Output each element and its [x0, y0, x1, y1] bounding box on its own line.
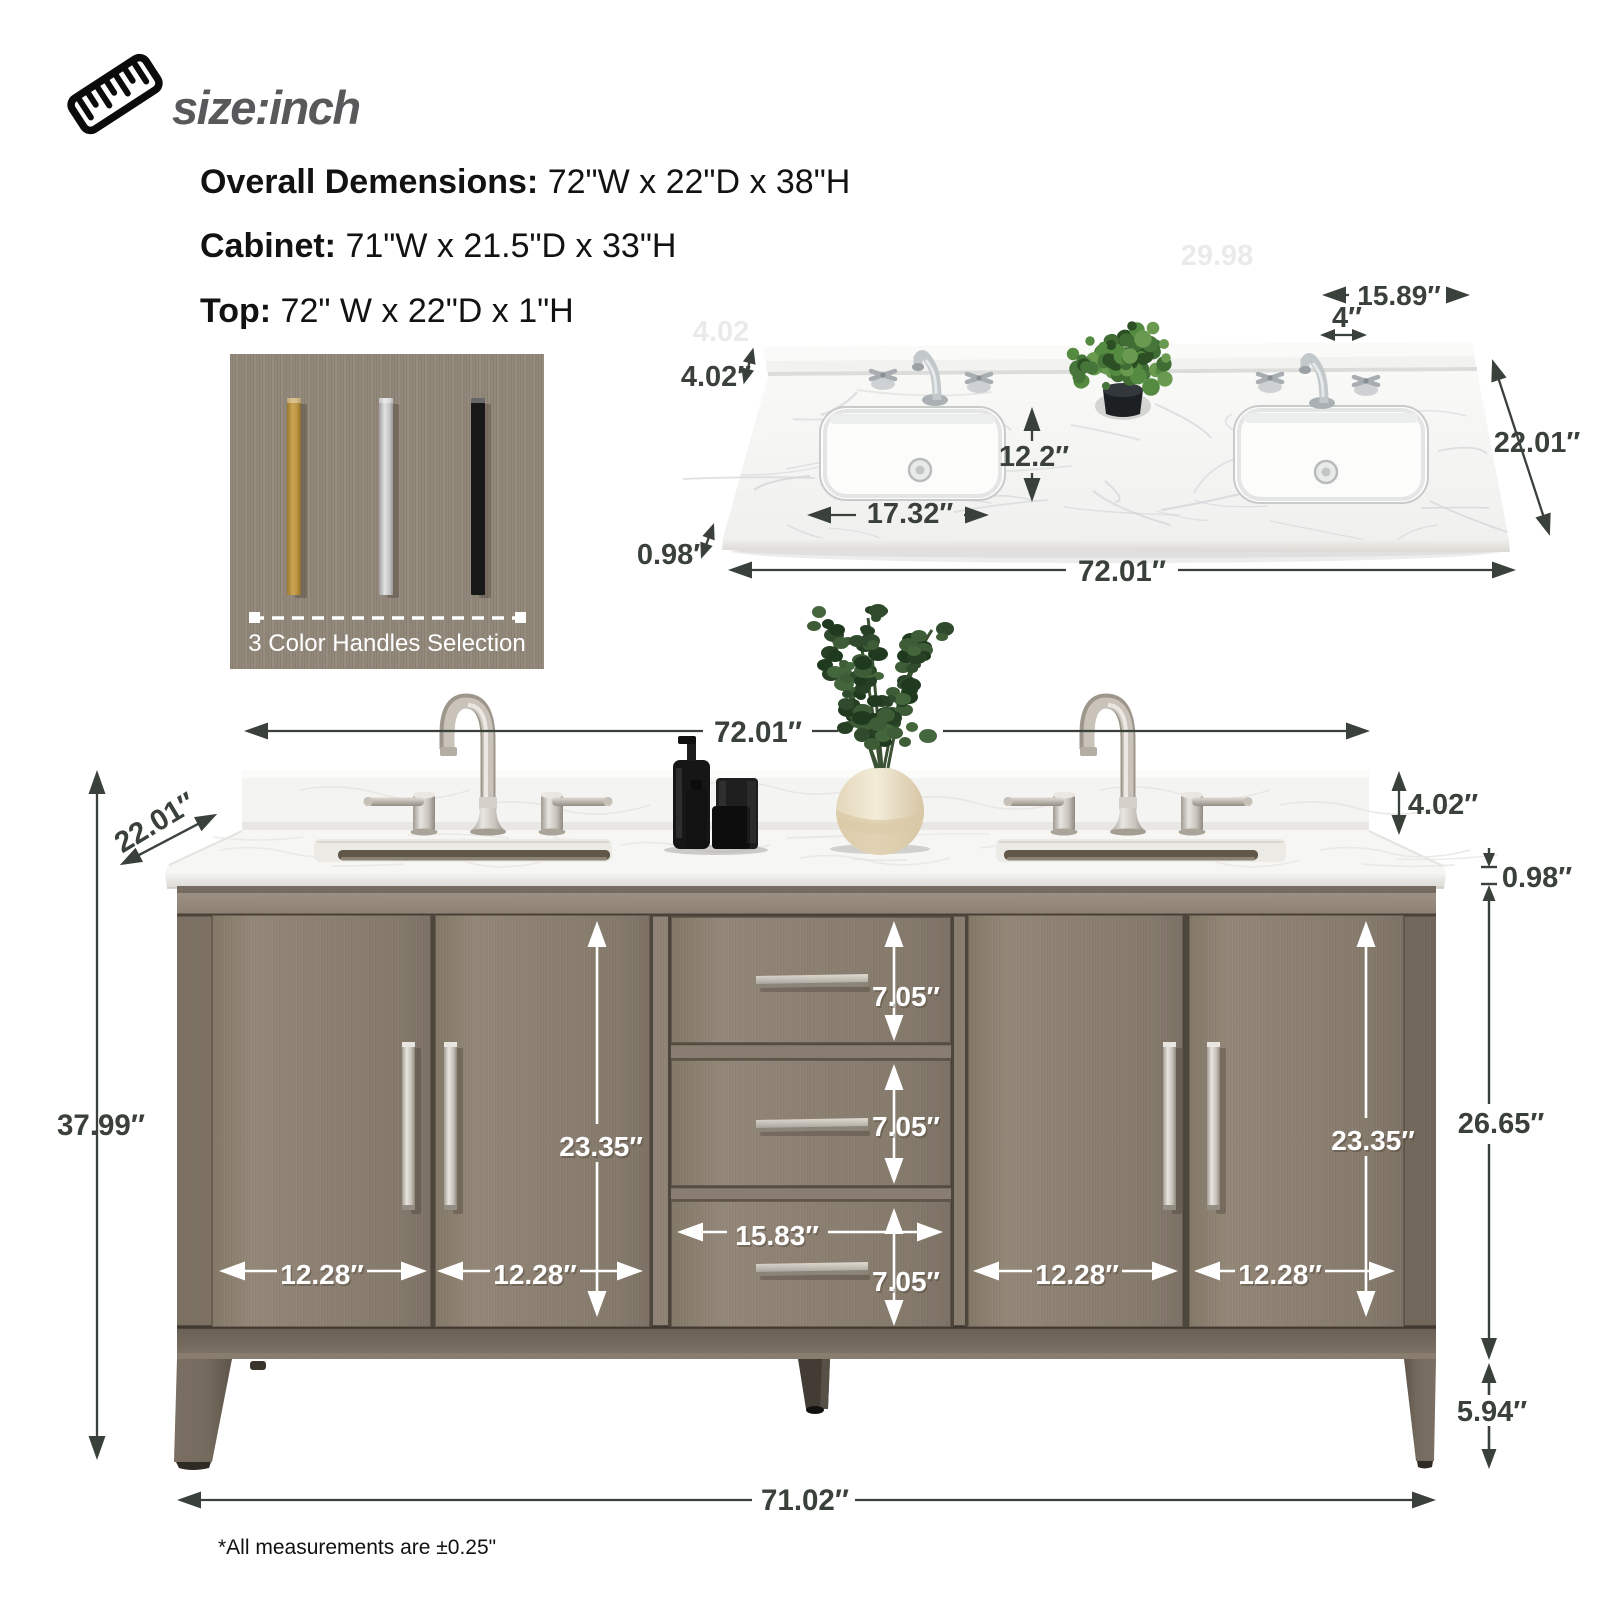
svg-text:72.01″: 72.01″: [714, 716, 802, 749]
svg-text:15.89″: 15.89″: [1357, 280, 1440, 311]
svg-text:0.98″: 0.98″: [1502, 862, 1572, 894]
svg-text:29.98: 29.98: [1181, 240, 1254, 272]
svg-text:size:inch: size:inch: [172, 81, 360, 134]
svg-text:4″: 4″: [1332, 302, 1362, 334]
svg-text:7.05″: 7.05″: [872, 1111, 940, 1142]
svg-text:4.02″: 4.02″: [681, 361, 751, 393]
svg-text:37.99″: 37.99″: [57, 1109, 145, 1142]
svg-text:23.35″: 23.35″: [559, 1131, 642, 1162]
svg-text:4.02: 4.02: [693, 316, 749, 348]
svg-text:*All measurements are ±0.25": *All measurements are ±0.25": [218, 1536, 496, 1559]
svg-text:12.28″: 12.28″: [493, 1259, 576, 1290]
svg-text:7.05″: 7.05″: [872, 981, 940, 1012]
svg-text:Overall Demensions: 72"W x 22": Overall Demensions: 72"W x 22"D x 38"H: [200, 163, 850, 201]
svg-text:22.01″: 22.01″: [1494, 427, 1581, 459]
svg-text:3 Color Handles Selection: 3 Color Handles Selection: [248, 630, 526, 657]
svg-text:72.01″: 72.01″: [1078, 555, 1166, 588]
svg-text:15.83″: 15.83″: [735, 1220, 818, 1251]
svg-text:12.28″: 12.28″: [1238, 1259, 1321, 1290]
svg-text:0.98″: 0.98″: [637, 539, 707, 571]
svg-text:26.65″: 26.65″: [1458, 1108, 1545, 1140]
svg-text:12.28″: 12.28″: [1035, 1259, 1118, 1290]
svg-text:Top: 72" W x 22"D x 1"H: Top: 72" W x 22"D x 1"H: [200, 292, 574, 330]
svg-text:7.05″: 7.05″: [872, 1266, 940, 1297]
svg-text:Cabinet: 71"W x 21.5"D x 33"H: Cabinet: 71"W x 21.5"D x 33"H: [200, 227, 676, 265]
svg-text:23.35″: 23.35″: [1331, 1125, 1414, 1156]
svg-text:5.94″: 5.94″: [1457, 1396, 1527, 1428]
svg-text:71.02″: 71.02″: [761, 1484, 849, 1517]
svg-text:4.02″: 4.02″: [1408, 789, 1478, 821]
svg-text:12.2″: 12.2″: [999, 441, 1069, 473]
svg-text:12.28″: 12.28″: [280, 1259, 363, 1290]
svg-text:17.32″: 17.32″: [867, 498, 954, 530]
